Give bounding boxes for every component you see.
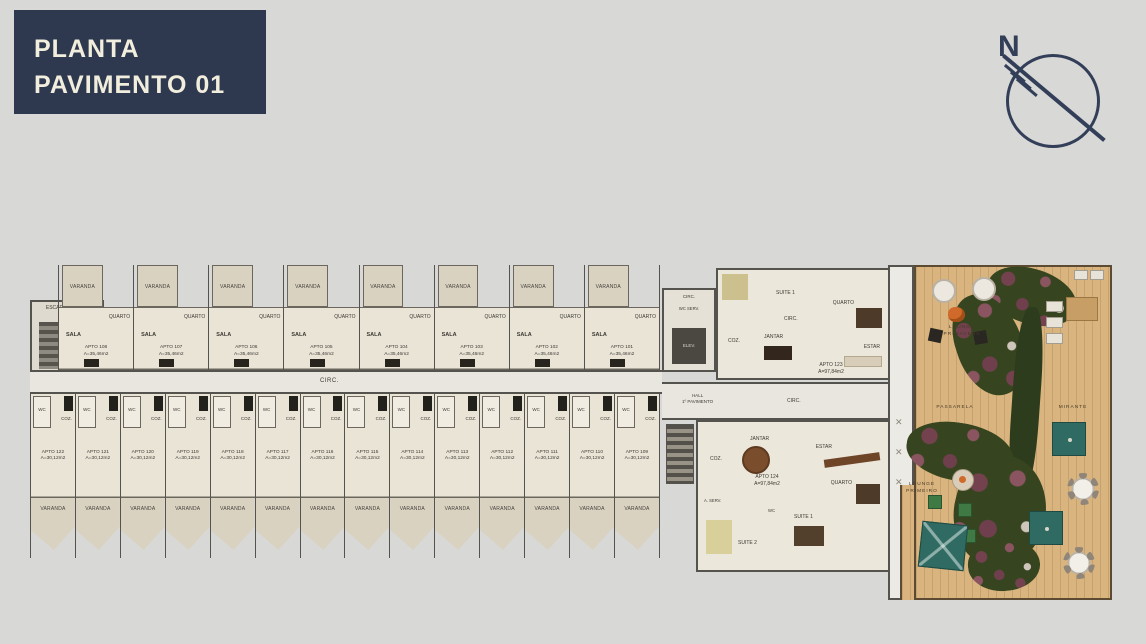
stove — [603, 396, 612, 411]
unit-number-label: APTO 102A=35,46m2 — [510, 345, 584, 358]
stove — [109, 396, 118, 411]
varanda-area: VARANDA — [256, 498, 300, 550]
suite1-label: SUITE 1 — [794, 514, 813, 520]
coz-label: COZ. — [710, 456, 722, 462]
wc-label: WC — [348, 407, 364, 412]
quarto-label: QUARTO — [409, 314, 430, 320]
apartment-unit: VARANDA SALA QUARTO APTO 107A=35,46m2 — [133, 265, 208, 370]
core-wc-label: WC SERV. — [664, 306, 714, 311]
stove — [333, 396, 342, 411]
quarto-label: QUARTO — [184, 314, 205, 320]
suite1-label: SUITE 1 — [776, 290, 795, 296]
varanda-area: VARANDA — [62, 265, 103, 307]
garden-table — [928, 495, 942, 509]
quarto-label: QUARTO — [334, 314, 355, 320]
varanda-label: VARANDA — [288, 284, 327, 290]
stove — [154, 396, 163, 411]
apartment-interior: WC COZ. APTO 120A=30,12m2 — [121, 394, 165, 498]
suite-furniture — [706, 520, 732, 554]
kitchenette — [460, 359, 475, 367]
coz-label: COZ. — [61, 416, 72, 421]
garden-table — [958, 503, 972, 517]
apartment-unit: WC COZ. APTO 116A=30,12m2 VARANDA — [300, 394, 345, 558]
apartment-unit: WC COZ. APTO 117A=30,12m2 VARANDA — [255, 394, 300, 558]
apartment-interior: WC COZ. APTO 119A=30,12m2 — [166, 394, 210, 498]
umbrella-table — [1029, 511, 1063, 545]
wc-room: WC — [78, 396, 96, 428]
apartment-unit: WC COZ. APTO 113A=30,12m2 VARANDA — [434, 394, 479, 558]
apartment-interior: SALA QUARTO APTO 105A=35,46m2 — [284, 307, 358, 370]
coz-label: COZ. — [421, 416, 432, 421]
unit-number-label: APTO 108A=35,46m2 — [59, 345, 133, 358]
elevator-core: CIRC. WC SERV. ELEV. — [662, 288, 716, 372]
varanda-area: VARANDA — [212, 265, 253, 307]
wc-label: WC — [124, 407, 140, 412]
bed — [856, 484, 880, 504]
coz-label: COZ. — [728, 338, 740, 344]
stove — [558, 396, 567, 411]
varanda-area: VARANDA — [438, 265, 479, 307]
varanda-label: VARANDA — [435, 506, 479, 512]
unit-number-label: APTO 122A=30,12m2 — [31, 450, 75, 463]
apartment-interior: WC COZ. APTO 117A=30,12m2 — [256, 394, 300, 498]
coz-label: COZ. — [241, 416, 252, 421]
sala-label: SALA — [291, 332, 306, 338]
apartment-interior: WC COZ. APTO 116A=30,12m2 — [301, 394, 345, 498]
coz-label: COZ. — [555, 416, 566, 421]
wc-room: WC — [572, 396, 590, 428]
apartment-123: SUITE 2 SUITE 1 QUARTO CIRC. COZ. JANTAR… — [716, 268, 890, 380]
varanda-label: VARANDA — [364, 284, 403, 290]
top-apartment-row: VARANDA SALA QUARTO APTO 108A=35,46m2 VA… — [58, 265, 660, 370]
kitchenette — [234, 359, 249, 367]
apartment-interior: WC COZ. APTO 112A=30,12m2 — [480, 394, 524, 498]
apartment-unit: WC COZ. APTO 121A=30,12m2 VARANDA — [75, 394, 120, 558]
varanda-area: VARANDA — [31, 498, 75, 550]
apartment-interior: WC COZ. APTO 110A=30,12m2 — [570, 394, 614, 498]
stove — [468, 396, 477, 411]
counter — [824, 452, 881, 468]
unit-number-label: APTO 101A=35,46m2 — [585, 345, 659, 358]
umbrella-table — [1052, 422, 1086, 456]
apartment-interior: SALA QUARTO APTO 102A=35,46m2 — [510, 307, 584, 370]
sala-label: SALA — [66, 332, 81, 338]
dining-table — [764, 346, 792, 360]
estar-label: ESTAR — [816, 444, 832, 450]
wc-room: WC — [258, 396, 276, 428]
round-table — [1063, 547, 1095, 579]
kitchenette — [385, 359, 400, 367]
wc-room: WC — [527, 396, 545, 428]
unit-number-label: APTO 109A=30,12m2 — [615, 450, 659, 463]
varanda-area: VARANDA — [570, 498, 614, 550]
apartment-interior: SALA QUARTO APTO 108A=35,46m2 — [59, 307, 133, 370]
stove — [648, 396, 657, 411]
wc-room: WC — [303, 396, 321, 428]
kitchenette — [84, 359, 99, 367]
unit-number-label: APTO 115A=30,12m2 — [345, 450, 389, 463]
wc-label: WC — [768, 508, 775, 513]
varanda-area: VARANDA — [345, 498, 389, 550]
apartment-unit: WC COZ. APTO 115A=30,12m2 VARANDA — [344, 394, 389, 558]
lounger — [1046, 301, 1063, 312]
round-dining-table — [742, 446, 770, 474]
title-block: PLANTA PAVIMENTO 01 — [14, 10, 266, 114]
varanda-label: VARANDA — [211, 506, 255, 512]
apartment-interior: WC COZ. APTO 111A=30,12m2 — [525, 394, 569, 498]
jantar-label: JANTAR — [750, 436, 769, 442]
unit-number-label: APTO 118A=30,12m2 — [211, 450, 255, 463]
title-line-1: PLANTA — [34, 32, 266, 68]
jantar-label: JANTAR — [764, 334, 783, 340]
apartment-unit: WC COZ. APTO 109A=30,12m2 VARANDA — [614, 394, 660, 558]
wc-label: WC — [79, 407, 95, 412]
unit-number-label: APTO 116A=30,12m2 — [301, 450, 345, 463]
wc-label: WC — [393, 407, 409, 412]
aserv-label: A. SERV. — [704, 498, 721, 503]
unit-number-label: APTO 105A=35,46m2 — [284, 345, 358, 358]
apartment-unit: VARANDA SALA QUARTO APTO 105A=35,46m2 — [283, 265, 358, 370]
varanda-area: VARANDA — [480, 498, 524, 550]
lounger — [1046, 317, 1063, 328]
chair — [1090, 270, 1104, 280]
varanda-label: VARANDA — [213, 284, 252, 290]
varanda-label: VARANDA — [256, 506, 300, 512]
bed — [856, 308, 882, 328]
apartment-interior: WC COZ. APTO 121A=30,12m2 — [76, 394, 120, 498]
varanda-label: VARANDA — [439, 284, 478, 290]
apartment-interior: SALA QUARTO APTO 107A=35,46m2 — [134, 307, 208, 370]
coz-label: COZ. — [331, 416, 342, 421]
coz-label: COZ. — [510, 416, 521, 421]
fire-pit — [948, 307, 965, 322]
floor-plan-page: PLANTA PAVIMENTO 01 N ESCADA INCÊND. VAR… — [0, 0, 1146, 644]
stove — [378, 396, 387, 411]
chair — [1074, 270, 1088, 280]
loveseat — [932, 279, 956, 303]
varanda-area: VARANDA — [363, 265, 404, 307]
service-stairs — [666, 424, 694, 484]
apartment-unit: VARANDA SALA QUARTO APTO 101A=35,46m2 — [584, 265, 660, 370]
wc-label: WC — [438, 407, 454, 412]
bottom-apartment-row: WC COZ. APTO 122A=30,12m2 VARANDA WC — [30, 394, 660, 558]
wc-room: WC — [168, 396, 186, 428]
wc-room: WC — [482, 396, 500, 428]
apartment-interior: SALA QUARTO APTO 103A=35,46m2 — [435, 307, 509, 370]
unit-number-label: APTO 104A=35,46m2 — [360, 345, 434, 358]
apartment-unit: VARANDA SALA QUARTO APTO 104A=35,46m2 — [359, 265, 434, 370]
kitchenette — [610, 359, 625, 367]
wc-label: WC — [304, 407, 320, 412]
coz-label: COZ. — [376, 416, 387, 421]
quarto-label: QUARTO — [831, 480, 852, 486]
passarela-label: PASSARELA — [920, 405, 990, 412]
apartment-interior: WC COZ. APTO 115A=30,12m2 — [345, 394, 389, 498]
varanda-label: VARANDA — [589, 284, 628, 290]
mirante-label: MIRANTE — [1042, 405, 1104, 412]
unit-number-label: APTO 124A=97,84m2 — [732, 474, 802, 488]
coz-label: COZ. — [286, 416, 297, 421]
varanda-label: VARANDA — [390, 506, 434, 512]
apartment-unit: VARANDA SALA QUARTO APTO 102A=35,46m2 — [509, 265, 584, 370]
wc-room: WC — [347, 396, 365, 428]
varanda-area: VARANDA — [166, 498, 210, 550]
apartment-unit: WC COZ. APTO 119A=30,12m2 VARANDA — [165, 394, 210, 558]
unit-number-label: APTO 119A=30,12m2 — [166, 450, 210, 463]
apartment-unit: WC COZ. APTO 114A=30,12m2 VARANDA — [389, 394, 434, 558]
amenity-deck: LOUNGE PRIMAVERA PASSARELA MIRANTE — [914, 265, 1112, 600]
wc-label: WC — [483, 407, 499, 412]
hall-label-2: 1º PAVIMENTO — [682, 399, 713, 405]
title-line-2: PAVIMENTO 01 — [34, 68, 266, 104]
loveseat — [972, 277, 996, 301]
coz-label: COZ. — [645, 416, 656, 421]
hall-corridor: HALL 1º PAVIMENTO CIRC. — [662, 382, 890, 420]
quarto-label: QUARTO — [833, 300, 854, 306]
quarto-label: QUARTO — [259, 314, 280, 320]
varanda-label: VARANDA — [166, 506, 210, 512]
wc-label: WC — [528, 407, 544, 412]
unit-number-label: APTO 120A=30,12m2 — [121, 450, 165, 463]
apartment-interior: SALA QUARTO APTO 104A=35,46m2 — [360, 307, 434, 370]
varanda-label: VARANDA — [76, 506, 120, 512]
elevator: ELEV. — [672, 328, 706, 364]
apartment-unit: VARANDA SALA QUARTO APTO 108A=35,46m2 — [58, 265, 133, 370]
wc-label: WC — [169, 407, 185, 412]
canopy-tent — [918, 521, 969, 572]
quarto-label: QUARTO — [635, 314, 656, 320]
apartment-interior: WC COZ. APTO 109A=30,12m2 — [615, 394, 659, 498]
apartment-interior: WC COZ. APTO 113A=30,12m2 — [435, 394, 479, 498]
sala-label: SALA — [517, 332, 532, 338]
apartment-unit: WC COZ. APTO 110A=30,12m2 VARANDA — [569, 394, 614, 558]
apartment-124: JANTAR COZ. ESTAR APTO 124A=97,84m2 QUAR… — [696, 420, 890, 572]
wc-label: WC — [259, 407, 275, 412]
unit-number-label: APTO 114A=30,12m2 — [390, 450, 434, 463]
brace-icon: ✕ — [895, 417, 903, 428]
varanda-label: VARANDA — [31, 506, 75, 512]
north-compass-icon: N — [990, 36, 1110, 156]
coz-label: COZ. — [196, 416, 207, 421]
unit-number-label: APTO 112A=30,12m2 — [480, 450, 524, 463]
coz-label: COZ. — [465, 416, 476, 421]
varanda-label: VARANDA — [514, 284, 553, 290]
apartment-unit: WC COZ. APTO 112A=30,12m2 VARANDA — [479, 394, 524, 558]
sala-label: SALA — [141, 332, 156, 338]
apartment-interior: WC COZ. APTO 122A=30,12m2 — [31, 394, 75, 498]
apartment-unit: WC COZ. APTO 118A=30,12m2 VARANDA — [210, 394, 255, 558]
varanda-label: VARANDA — [525, 506, 569, 512]
varanda-area: VARANDA — [435, 498, 479, 550]
bed — [794, 526, 824, 546]
wc-room: WC — [437, 396, 455, 428]
varanda-area: VARANDA — [513, 265, 554, 307]
unit-number-label: APTO 111A=30,12m2 — [525, 450, 569, 463]
unit-number-label: APTO 113A=30,12m2 — [435, 450, 479, 463]
fire-pit-lounge — [952, 469, 974, 491]
apartment-unit: VARANDA SALA QUARTO APTO 103A=35,46m2 — [434, 265, 509, 370]
varanda-area: VARANDA — [301, 498, 345, 550]
wc-label: WC — [618, 407, 634, 412]
hall-circ-label: CIRC. — [787, 398, 801, 404]
varanda-area: VARANDA — [76, 498, 120, 550]
apartment-interior: SALA QUARTO APTO 101A=35,46m2 — [585, 307, 659, 370]
varanda-area: VARANDA — [211, 498, 255, 550]
sofa — [844, 356, 882, 367]
unit-number-label: APTO 121A=30,12m2 — [76, 450, 120, 463]
corridor: CIRC. — [30, 370, 662, 394]
varanda-area: VARANDA — [588, 265, 629, 307]
suite-furniture — [722, 274, 748, 300]
wc-label: WC — [214, 407, 230, 412]
unit-number-label: APTO 110A=30,12m2 — [570, 450, 614, 463]
mat — [1066, 297, 1098, 321]
corridor-label: CIRC. — [320, 378, 339, 384]
stove — [64, 396, 73, 411]
apartment-interior: WC COZ. APTO 114A=30,12m2 — [390, 394, 434, 498]
wc-room: WC — [392, 396, 410, 428]
kitchenette — [310, 359, 325, 367]
wc-label: WC — [573, 407, 589, 412]
wc-room: WC — [33, 396, 51, 428]
apartment-interior: SALA QUARTO APTO 106A=35,46m2 — [209, 307, 283, 370]
suite2-label: SUITE 2 — [738, 540, 757, 546]
lounge-top-label: LOUNGE PRIMAVERA — [934, 325, 990, 338]
apartment-unit: WC COZ. APTO 122A=30,12m2 VARANDA — [30, 394, 75, 558]
varanda-area: VARANDA — [390, 498, 434, 550]
coz-label: COZ. — [106, 416, 117, 421]
lounge-bottom-label: LOUNGE PRIMEIRO — [896, 482, 948, 495]
kitchenette — [535, 359, 550, 367]
brace-icon: ✕ — [895, 447, 903, 458]
circ-label: CIRC. — [784, 316, 798, 322]
stove — [289, 396, 298, 411]
varanda-area: VARANDA — [287, 265, 328, 307]
varanda-label: VARANDA — [63, 284, 102, 290]
quarto-label: QUARTO — [109, 314, 130, 320]
wc-room: WC — [123, 396, 141, 428]
wc-room: WC — [617, 396, 635, 428]
apartment-unit: WC COZ. APTO 111A=30,12m2 VARANDA — [524, 394, 569, 558]
stove — [199, 396, 208, 411]
coz-label: COZ. — [600, 416, 611, 421]
unit-number-label: APTO 103A=35,46m2 — [435, 345, 509, 358]
varanda-label: VARANDA — [615, 506, 659, 512]
varanda-area: VARANDA — [137, 265, 178, 307]
apartment-unit: VARANDA SALA QUARTO APTO 106A=35,46m2 — [208, 265, 283, 370]
sala-label: SALA — [592, 332, 607, 338]
apartment-interior: WC COZ. APTO 118A=30,12m2 — [211, 394, 255, 498]
varanda-label: VARANDA — [121, 506, 165, 512]
sala-label: SALA — [442, 332, 457, 338]
varanda-label: VARANDA — [345, 506, 389, 512]
stove — [513, 396, 522, 411]
varanda-label: VARANDA — [570, 506, 614, 512]
wc-label: WC — [34, 407, 50, 412]
wc-room: WC — [213, 396, 231, 428]
coz-label: COZ. — [151, 416, 162, 421]
unit-number-label: APTO 117A=30,12m2 — [256, 450, 300, 463]
stove — [423, 396, 432, 411]
varanda-area: VARANDA — [525, 498, 569, 550]
varanda-label: VARANDA — [480, 506, 524, 512]
sala-label: SALA — [216, 332, 231, 338]
estar-label: ESTAR — [864, 344, 880, 350]
varanda-label: VARANDA — [301, 506, 345, 512]
stove — [244, 396, 253, 411]
varanda-area: VARANDA — [615, 498, 659, 550]
varanda-label: VARANDA — [138, 284, 177, 290]
lounger — [1046, 333, 1063, 344]
quarto-label: QUARTO — [560, 314, 581, 320]
apartment-unit: WC COZ. APTO 120A=30,12m2 VARANDA — [120, 394, 165, 558]
varanda-area: VARANDA — [121, 498, 165, 550]
core-circ-label: CIRC. — [664, 294, 714, 299]
sala-label: SALA — [367, 332, 382, 338]
unit-number-label: APTO 107A=35,46m2 — [134, 345, 208, 358]
quarto-label: QUARTO — [485, 314, 506, 320]
round-table — [1067, 473, 1099, 505]
unit-number-label: APTO 106A=35,46m2 — [209, 345, 283, 358]
kitchenette — [159, 359, 174, 367]
